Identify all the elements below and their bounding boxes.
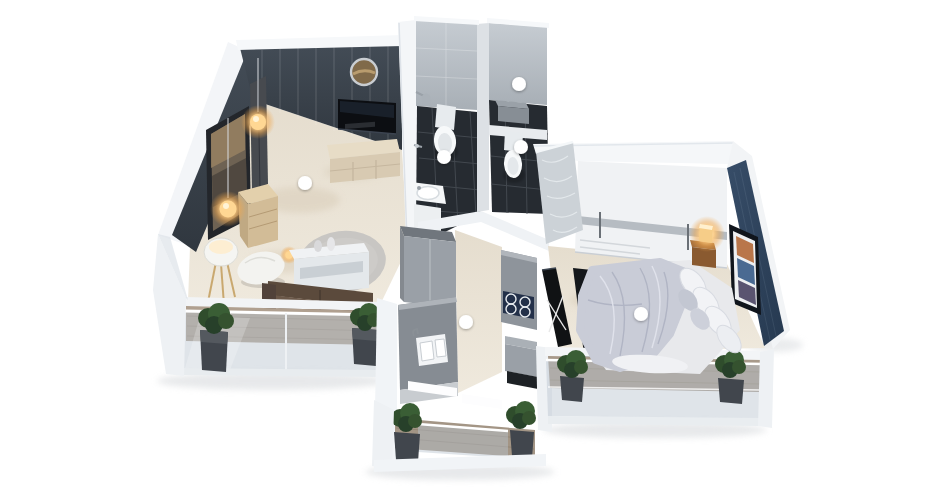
kitchen-floor: [455, 230, 502, 393]
living-room: [158, 35, 408, 320]
wall-divider: [477, 23, 489, 212]
wc-lower-hotspot[interactable]: [514, 140, 528, 154]
washer-unit: [495, 100, 529, 124]
fridge-unit: [400, 226, 456, 308]
round-mirror: [351, 59, 377, 85]
oven-unit: [505, 336, 538, 389]
bedside-lamp: [689, 216, 725, 252]
wc-upper-hotspot[interactable]: [512, 77, 526, 91]
bedroom-hotspot[interactable]: [634, 307, 648, 321]
bathroom-hotspot[interactable]: [437, 150, 451, 164]
bedroom: [533, 141, 790, 428]
floorplan-render: [0, 0, 940, 490]
kitchen-counter-hob: [501, 250, 538, 389]
floorplan-stage: [0, 0, 940, 490]
bathrooms: [398, 16, 549, 251]
kitchen-hotspot[interactable]: [459, 315, 473, 329]
living-room-hotspot[interactable]: [298, 176, 312, 190]
